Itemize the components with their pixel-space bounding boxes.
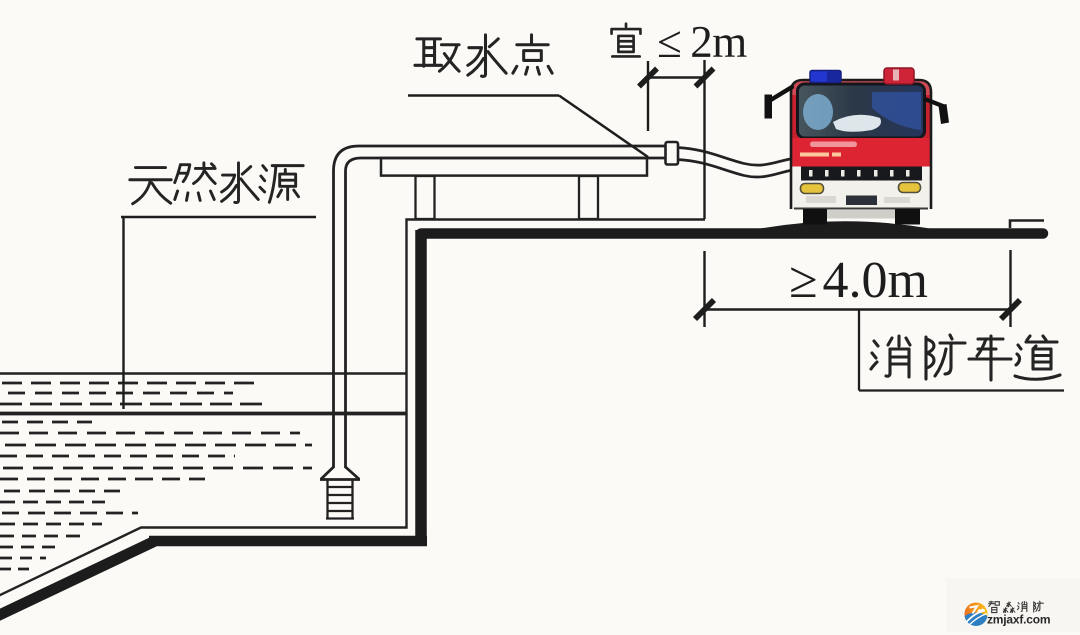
svg-text:≥4.0m: ≥4.0m (789, 252, 928, 309)
svg-text:zmjaxf.com: zmjaxf.com (987, 613, 1050, 627)
svg-text:≤2m: ≤2m (657, 17, 747, 67)
